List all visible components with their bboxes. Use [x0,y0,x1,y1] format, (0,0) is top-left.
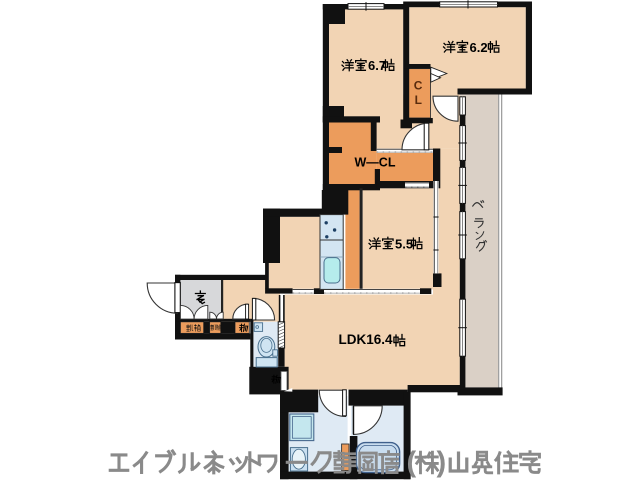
svg-text:(: ( [407,447,417,479]
svg-text:5.5: 5.5 [395,236,413,251]
svg-text:L: L [415,93,422,107]
svg-text:C: C [414,79,423,93]
svg-text:LDK16.4: LDK16.4 [339,332,394,347]
svg-text:): ) [437,447,447,479]
svg-text:W—CL: W—CL [355,156,396,170]
svg-text:6.2: 6.2 [470,40,488,55]
